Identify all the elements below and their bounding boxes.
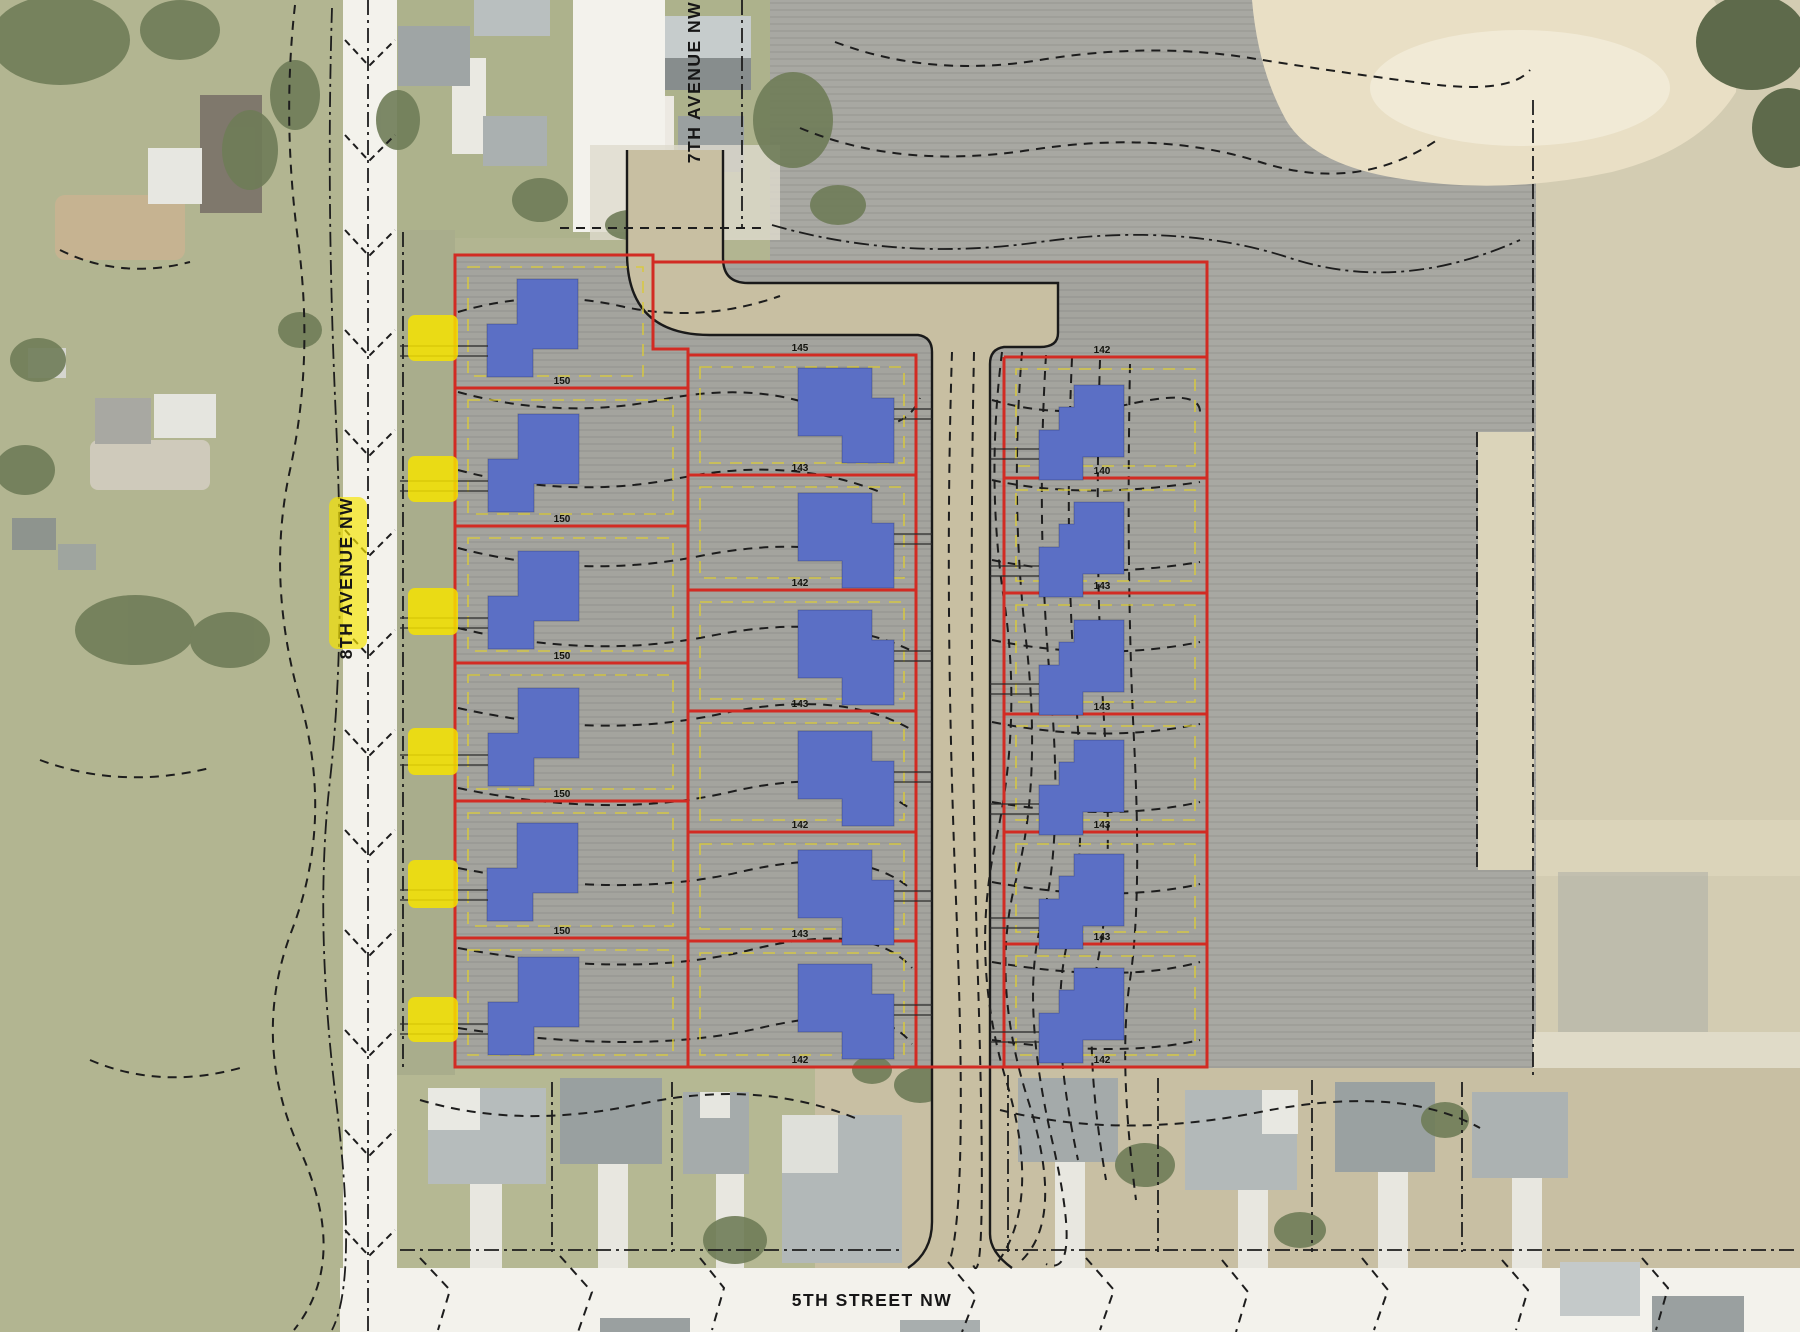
lot-dimension-label: 150 bbox=[554, 376, 571, 387]
label-avenue-7th: 7TH AVENUE NW bbox=[684, 1, 704, 163]
terrain-base bbox=[0, 0, 1800, 1332]
lot-dimension-label: 142 bbox=[792, 820, 809, 831]
lot-dimension-label: 143 bbox=[1094, 702, 1111, 713]
lot-dimension-label: 150 bbox=[554, 651, 571, 662]
lot-dimension-label: 150 bbox=[554, 789, 571, 800]
house-roof bbox=[398, 26, 470, 86]
label-street-5th: 5TH STREET NW bbox=[792, 1290, 952, 1310]
avenue-8th-pavement bbox=[343, 0, 397, 1332]
lot-dimension-label: 150 bbox=[554, 926, 571, 937]
site-plan-map: 7TH AVENUE NW 8TH AVENUE NW 5TH STREET N… bbox=[0, 0, 1800, 1332]
lot-dimension-label: 142 bbox=[1094, 1055, 1111, 1066]
lot-dimension-label: 150 bbox=[554, 514, 571, 525]
lot-dimension-label: 143 bbox=[792, 929, 809, 940]
label-avenue-8th: 8TH AVENUE NW bbox=[336, 497, 356, 659]
lot-dimension-label: 143 bbox=[792, 463, 809, 474]
aerial-plat-canvas: 7TH AVENUE NW 8TH AVENUE NW 5TH STREET N… bbox=[0, 0, 1800, 1332]
lot-dimension-label: 140 bbox=[1094, 466, 1111, 477]
lot-dimension-label: 142 bbox=[1094, 345, 1111, 356]
lot-dimension-label: 143 bbox=[1094, 932, 1111, 943]
lot-dimension-label: 143 bbox=[1094, 581, 1111, 592]
lot-dimension-label: 142 bbox=[792, 578, 809, 589]
lot-dimension-label: 143 bbox=[1094, 820, 1111, 831]
lot-dimension-label: 143 bbox=[792, 699, 809, 710]
lot-dimension-label: 142 bbox=[792, 1055, 809, 1066]
lot-dimension-label: 145 bbox=[792, 343, 809, 354]
farm-building-roof bbox=[148, 148, 202, 204]
